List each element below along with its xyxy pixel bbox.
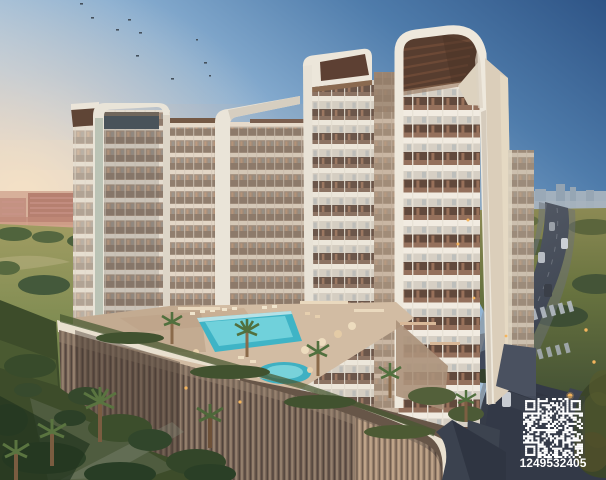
svg-text:1249532405: 1249532405 [520, 456, 587, 470]
